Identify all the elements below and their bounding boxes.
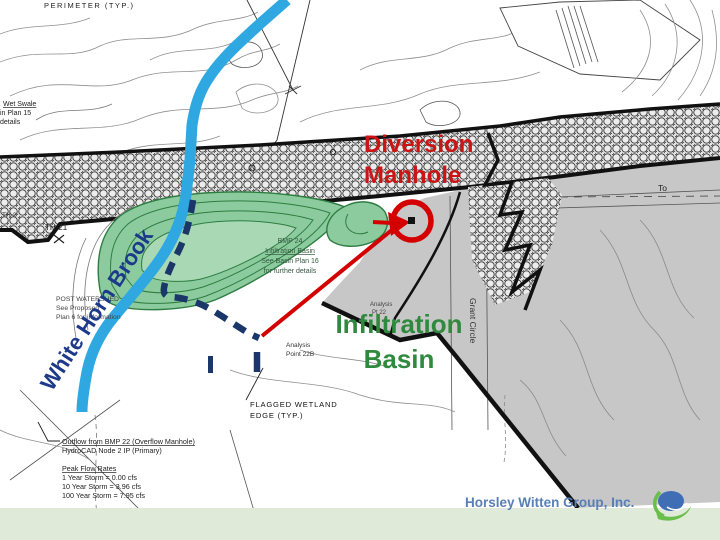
red-arrow-tail (373, 222, 392, 223)
footer-band (0, 508, 720, 540)
wet-swale-label-1: Wet Swale (3, 101, 36, 108)
analysis-point-22b-2: Point 22B (286, 351, 314, 358)
to-label: To (658, 183, 667, 193)
wet-swale-label-2: in Plan 15 (0, 110, 31, 117)
infiltration-label-line1: Infiltration (335, 309, 462, 339)
basin-note-2: Infiltration Basin (265, 248, 315, 255)
th21-label: TH-21 (45, 223, 68, 232)
grant-circle-label: Grant Circle (468, 298, 478, 344)
flagged-wetland-label-2: EDGE (TYP.) (250, 411, 303, 420)
slide: PERIMETER (TYP.) Wet Swale in Plan 15 de… (0, 0, 720, 540)
peak-flow-100yr: 100 Year Storm = 7.95 cfs (62, 491, 145, 500)
analysis-pt22-1: Analysis (370, 302, 392, 308)
footer-company: Horsley Witten Group, Inc. (465, 495, 634, 510)
site-plan-map: PERIMETER (TYP.) Wet Swale in Plan 15 de… (0, 0, 720, 540)
th2-label: TH-2 (2, 212, 17, 219)
infiltration-label-line2: Basin (364, 344, 435, 374)
diversion-label-line2: Manhole (364, 162, 461, 189)
manhole-symbol (408, 217, 415, 224)
outflow-node: HydroCAD Node 2 IP (Primary) (62, 446, 162, 455)
peak-flow-1yr: 1 Year Storm = 0.00 cfs (62, 473, 137, 482)
wetland-flag-mark (208, 356, 213, 373)
basin-note-3: See Basin Plan 16 (261, 258, 319, 265)
outflow-title: Outflow from BMP 22 (Overflow Manhole) (62, 437, 195, 446)
wet-swale-label-3: details (0, 119, 21, 126)
basin-note-1: BMP 24 (278, 238, 303, 245)
analysis-point-22b-1: Analysis (286, 342, 311, 349)
peak-flow-10yr: 10 Year Storm = 3.96 cfs (62, 482, 141, 491)
diversion-label-line1: Diversion (364, 131, 473, 158)
perimeter-label: PERIMETER (TYP.) (44, 1, 135, 10)
basin-note-4: for further details (264, 268, 317, 275)
flagged-wetland-label-1: FLAGGED WETLAND (250, 400, 338, 409)
peak-flow-title: Peak Flow Rates (62, 464, 117, 473)
